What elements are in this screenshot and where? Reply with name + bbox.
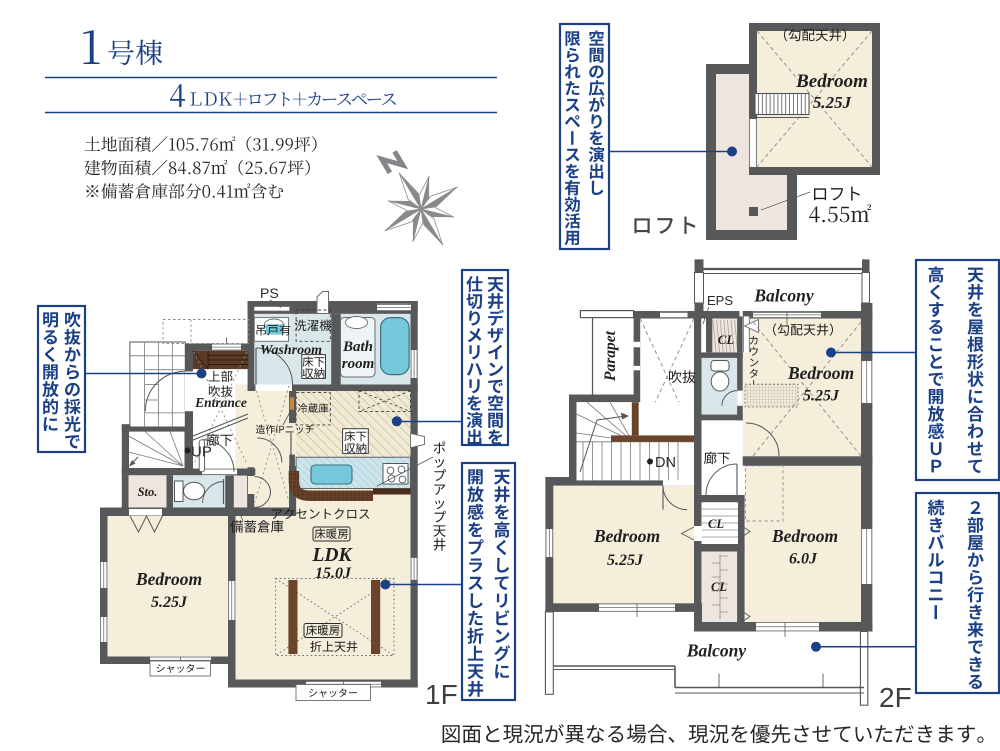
svg-text:room: room — [342, 356, 375, 372]
svg-text:Bath: Bath — [342, 339, 373, 355]
svg-text:UP: UP — [191, 444, 212, 461]
svg-text:PS: PS — [260, 285, 279, 301]
svg-text:DN: DN — [655, 455, 676, 471]
svg-text:5.25J: 5.25J — [607, 552, 644, 569]
svg-text:Balcony: Balcony — [753, 286, 814, 306]
svg-text:5.25J: 5.25J — [151, 594, 188, 611]
svg-text:Bedroom: Bedroom — [771, 526, 838, 546]
svg-text:Entrance: Entrance — [194, 395, 247, 410]
svg-text:5.25J: 5.25J — [803, 388, 840, 405]
svg-text:1F: 1F — [425, 679, 458, 710]
svg-text:6.0J: 6.0J — [789, 551, 818, 568]
svg-text:Bedroom: Bedroom — [135, 569, 202, 589]
svg-text:EPS: EPS — [707, 293, 733, 308]
svg-text:Sto.: Sto. — [138, 485, 158, 499]
svg-text:CL: CL — [708, 517, 724, 531]
svg-text:Parapet: Parapet — [602, 330, 619, 381]
svg-text:15.0J: 15.0J — [315, 565, 352, 582]
svg-text:CL: CL — [718, 332, 735, 347]
svg-text:Bedroom: Bedroom — [593, 526, 660, 546]
svg-text:2F: 2F — [879, 682, 912, 713]
svg-text:5.25J: 5.25J — [813, 93, 852, 112]
svg-text:LDK: LDK — [312, 545, 354, 566]
svg-text:Bedroom: Bedroom — [795, 71, 868, 92]
svg-text:Balcony: Balcony — [686, 641, 747, 661]
svg-text:CL: CL — [711, 580, 727, 594]
svg-text:Bedroom: Bedroom — [787, 363, 854, 383]
